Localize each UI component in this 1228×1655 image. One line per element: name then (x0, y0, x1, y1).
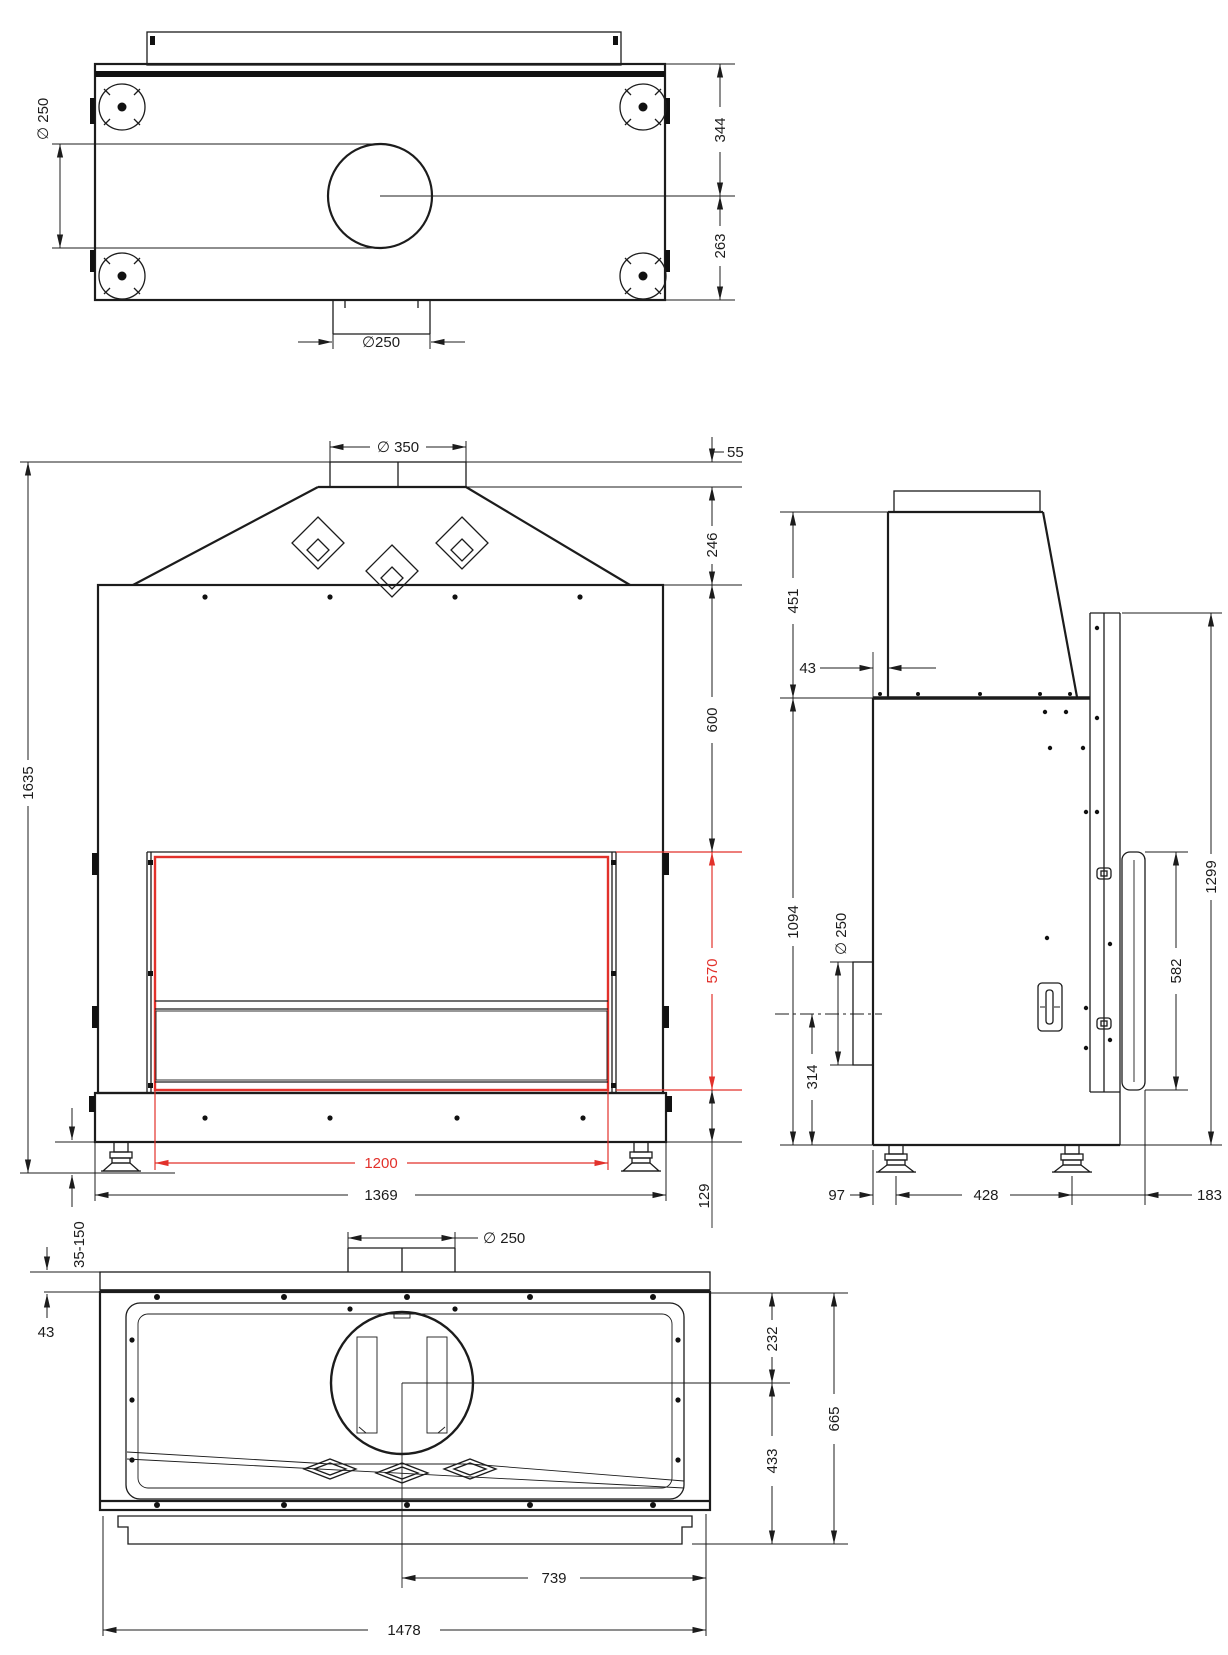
dim-body-width: 1369 (95, 1142, 666, 1204)
collar-stub (348, 1248, 455, 1272)
floor-vent-diamond (304, 1459, 496, 1483)
dim-width-chain: 739 1478 (103, 1514, 706, 1639)
top-flange (147, 32, 621, 65)
dim-label: 1478 (387, 1622, 420, 1639)
dim-label: 55 (727, 444, 744, 461)
dim-label: 1094 (785, 905, 802, 938)
top-plate (100, 1272, 710, 1290)
dim-front-recess: 43 (799, 652, 936, 698)
dim-plate-thickness: 43 (30, 1247, 100, 1341)
front-edge-band (95, 71, 665, 77)
body-side (873, 698, 1120, 1145)
grille (156, 1011, 607, 1080)
technical-drawing: ∅250 ∅ 250 344 263 (0, 0, 1228, 1650)
dim-depth-chain: 344 263 (380, 64, 735, 300)
dim-label: 232 (764, 1326, 781, 1351)
mount-ring (620, 253, 666, 299)
dim-flue-diameter: ∅ 250 (35, 98, 380, 248)
dim-rear-collar: ∅250 (298, 334, 465, 351)
dim-label: 129 (696, 1183, 713, 1208)
dim-total-height: 1635 (20, 462, 330, 1173)
dim-label: 97 (828, 1187, 845, 1204)
side-view: 451 1094 43 ∅ 250 314 1299 (775, 491, 1222, 1205)
top-view: ∅250 ∅ 250 344 263 (35, 32, 735, 351)
dim-label: ∅ 350 (377, 439, 419, 456)
dim-label: 1369 (364, 1187, 397, 1204)
leg (101, 1142, 141, 1171)
dim-adjustable-feet: 35-150 (55, 1108, 95, 1268)
dim-label: 582 (1168, 958, 1185, 983)
front-view: ∅ 350 1635 35-150 55 246 (20, 437, 744, 1268)
side-clip (90, 250, 95, 272)
flange-nub (613, 36, 618, 45)
dim-label: 344 (712, 117, 729, 142)
inner-frame-2 (138, 1314, 672, 1488)
leg (876, 1145, 916, 1172)
dim-label: 314 (804, 1064, 821, 1089)
hood-side (888, 512, 1077, 698)
dim-flue-collar: ∅ 350 (330, 439, 466, 462)
side-clip (663, 1006, 669, 1028)
rear-collar-stub (333, 300, 430, 334)
screw-dots (129, 1294, 680, 1508)
bottom-flange (118, 1516, 692, 1544)
dim-glass-width: 1200 (155, 1090, 608, 1172)
glass-frame (147, 852, 616, 1093)
dim-label: ∅ 250 (833, 913, 850, 955)
dim-label: 739 (541, 1570, 566, 1587)
dim-rear-frame: 1299 582 (1120, 613, 1222, 1145)
dim-label: 263 (712, 233, 729, 258)
dim-label: 433 (764, 1448, 781, 1473)
dim-rear-outlet: ∅ 250 314 (804, 913, 853, 1145)
inner-frame (126, 1303, 684, 1499)
leg (1052, 1145, 1092, 1172)
dim-label: 183 (1197, 1187, 1222, 1204)
dim-label: 43 (799, 660, 816, 677)
dim-height-chain: 55 246 600 570 129 (466, 437, 744, 1228)
dim-label: 35-150 (71, 1221, 88, 1268)
dim-side-height-chain: 451 1094 (780, 512, 888, 1145)
dim-label: 246 (704, 532, 721, 557)
bottom-view: 43 ∅ 250 232 433 665 739 (30, 1230, 848, 1639)
dim-label: 428 (973, 1187, 998, 1204)
flue-collar-side (894, 491, 1040, 512)
front-body-outline (98, 585, 663, 1093)
dim-label: ∅250 (362, 334, 400, 351)
dim-label: 451 (785, 588, 802, 613)
dim-depth-chain: 232 433 665 (692, 1293, 848, 1544)
side-clip (665, 250, 670, 272)
hood (133, 487, 630, 585)
rear-outlet-side (853, 962, 873, 1065)
dim-label: 1299 (1203, 860, 1220, 893)
rear-frame (1090, 613, 1145, 1145)
flange-nub (150, 36, 155, 45)
mount-ring (99, 253, 145, 299)
dim-label: 600 (704, 707, 721, 732)
side-vent-plate (1038, 983, 1062, 1031)
leg (621, 1142, 661, 1171)
dim-label: 1200 (364, 1155, 397, 1172)
dim-label: ∅ 250 (35, 98, 52, 140)
mount-ring (620, 84, 666, 130)
dim-label: 665 (826, 1406, 843, 1431)
side-clip (92, 1006, 98, 1028)
top-body-outline (95, 64, 665, 300)
dim-label: 1635 (20, 766, 37, 799)
dim-label: ∅ 250 (483, 1230, 525, 1247)
side-clip (90, 98, 95, 124)
plinth (95, 1093, 666, 1142)
dim-label: 43 (38, 1324, 55, 1341)
side-clip (663, 853, 669, 875)
mount-ring (99, 84, 145, 130)
dim-label: 570 (704, 958, 721, 983)
dim-side-depth-chain: 97 428 183 (828, 1090, 1222, 1205)
dim-collar-diameter: ∅ 250 (348, 1230, 525, 1248)
glass-opening-red (155, 857, 608, 1090)
side-clip (92, 853, 98, 875)
